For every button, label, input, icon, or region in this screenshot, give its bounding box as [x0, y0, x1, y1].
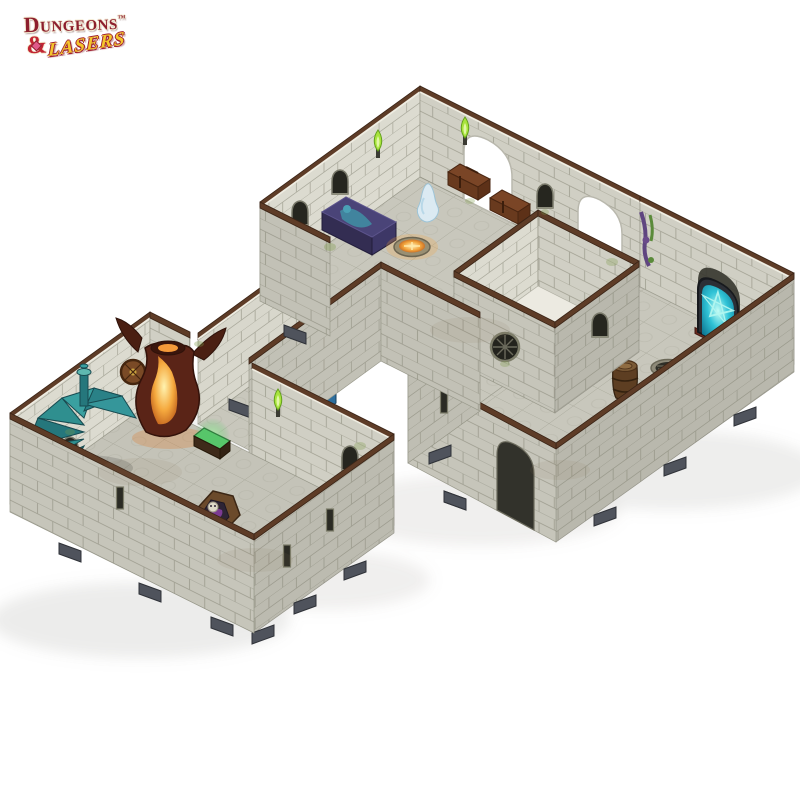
brand-logo: Dungeons™ & Lasers: [23, 10, 154, 59]
dungeon-structure: [0, 0, 800, 800]
fire-pit: [386, 234, 438, 260]
trademark-mark: ™: [117, 13, 126, 22]
logo-ampersand: &: [26, 32, 48, 58]
barred-window-icon: [537, 184, 553, 208]
product-photo: Dungeons™ & Lasers: [0, 0, 800, 800]
barred-window-icon: [332, 170, 348, 194]
slit-window-icon: [327, 509, 334, 531]
slit-window-icon: [117, 487, 124, 509]
logo-line2: & Lasers: [26, 29, 155, 58]
barred-window-icon: [592, 313, 608, 337]
